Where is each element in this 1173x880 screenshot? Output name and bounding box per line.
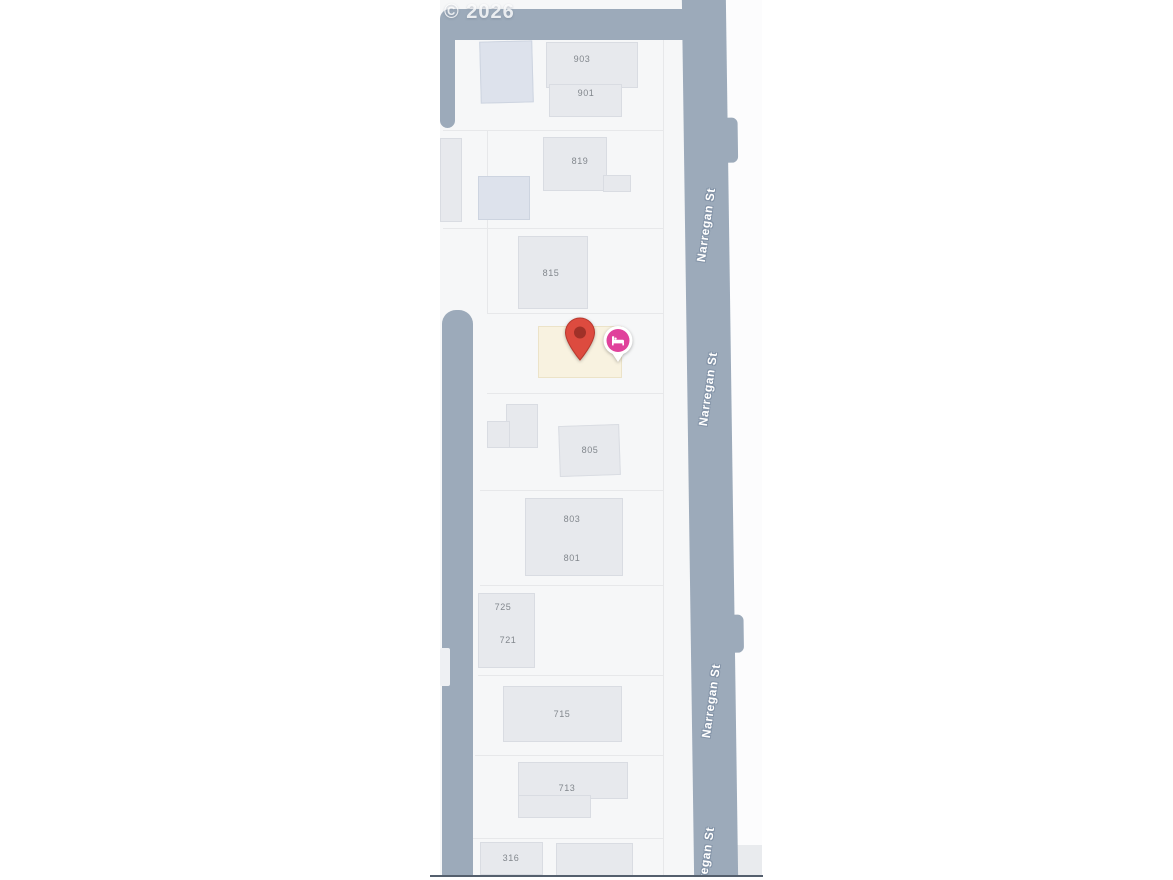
lodging-marker-icon[interactable]: [600, 322, 636, 364]
driveway-notch: [440, 648, 450, 686]
road-stub-left: [440, 22, 455, 128]
address-label: 725: [495, 602, 512, 612]
parcel-line: [478, 675, 663, 676]
location-pin-icon[interactable]: [563, 316, 597, 364]
building: [487, 421, 510, 448]
address-label: 901: [578, 88, 595, 98]
parcel-line: [487, 130, 488, 313]
east-parcel-patch: [735, 845, 762, 877]
address-label: 721: [500, 635, 517, 645]
building: [546, 42, 638, 88]
address-label: 713: [559, 783, 576, 793]
building: [506, 404, 538, 448]
road-left: [442, 310, 473, 877]
address-label: 803: [564, 514, 581, 524]
road-pullout-mid: [731, 615, 744, 653]
parcel-line: [487, 313, 663, 314]
parcel-line: [443, 130, 663, 131]
address-label: 903: [574, 54, 591, 64]
building: [478, 176, 530, 220]
parcel-line: [443, 228, 663, 229]
parcel-line: [473, 838, 663, 839]
address-label: 819: [572, 156, 589, 166]
building: [518, 762, 628, 799]
parcel-line: [475, 755, 663, 756]
map-bottom-edge: [430, 875, 763, 877]
building: [518, 795, 591, 818]
address-label: 805: [582, 445, 599, 455]
page: { "map": { "copyright": "© 2026", "stree…: [0, 0, 1173, 880]
road-narregan-st: [682, 0, 738, 877]
map-viewport[interactable]: Narregan StNarregan StNarregan StNarrega…: [440, 0, 762, 877]
address-label: 801: [564, 553, 581, 563]
parcel-line: [487, 393, 663, 394]
address-label: 316: [503, 853, 520, 863]
address-label: 815: [543, 268, 560, 278]
building: [479, 40, 534, 103]
parcel-line: [480, 585, 663, 586]
map-copyright: © 2026: [444, 1, 515, 24]
building: [603, 175, 631, 192]
address-label: 715: [554, 709, 571, 719]
road-pullout-top: [725, 118, 739, 163]
building: [440, 138, 462, 222]
parcel-line: [480, 490, 663, 491]
building: [525, 498, 623, 576]
building: [556, 843, 633, 877]
parcel-line: [663, 40, 664, 875]
